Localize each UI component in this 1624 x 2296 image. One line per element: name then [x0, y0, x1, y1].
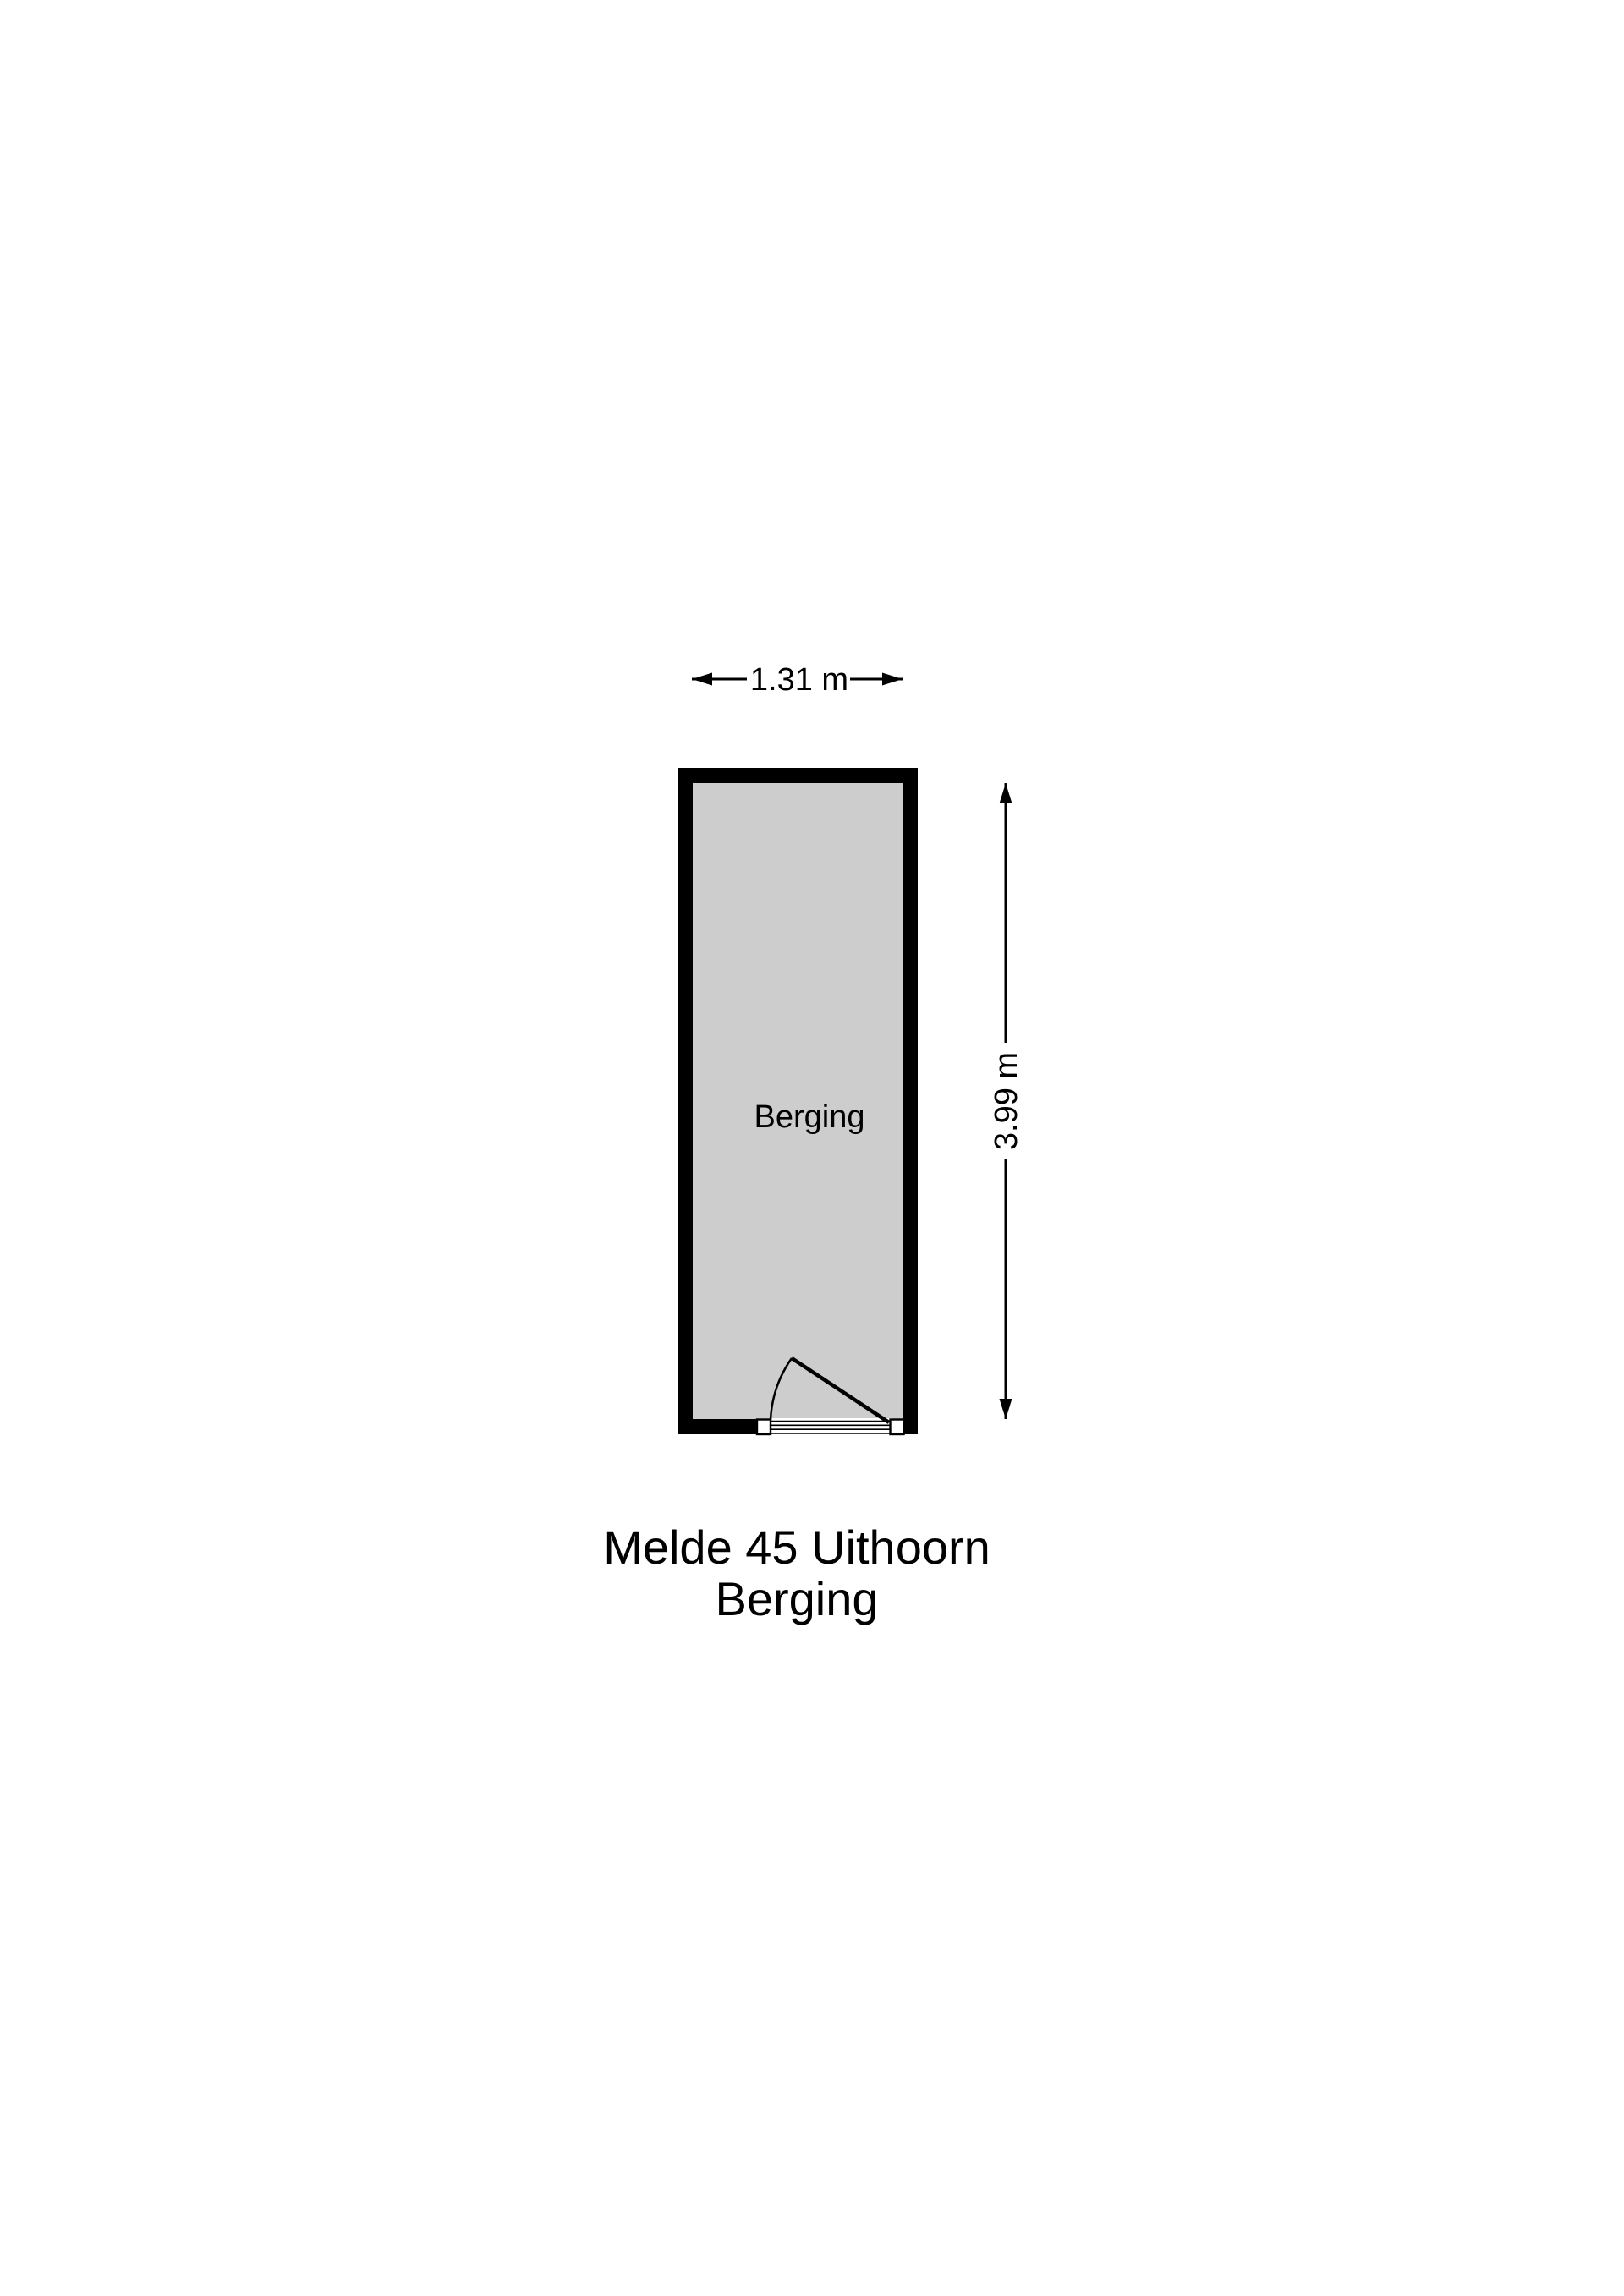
arrowhead-left-icon: [692, 673, 712, 686]
caption-line2: Berging: [715, 1572, 878, 1625]
arrowhead-up-icon: [1000, 783, 1012, 803]
floorplan-canvas: 1.31 m Berging 3.99 m: [0, 0, 1624, 2296]
width-dimension: 1.31 m: [692, 662, 903, 698]
room-label: Berging: [754, 1099, 865, 1135]
height-dimension: 3.99 m: [989, 783, 1024, 1419]
arrowhead-right-icon: [882, 673, 903, 686]
floorplan-page: 1.31 m Berging 3.99 m: [0, 0, 1624, 2296]
width-dimension-label: 1.31 m: [750, 662, 848, 698]
height-dimension-label: 3.99 m: [989, 1052, 1024, 1150]
caption-line1: Melde 45 Uithoorn: [603, 1521, 990, 1574]
caption: Melde 45 Uithoorn Berging: [603, 1521, 990, 1625]
arrowhead-down-icon: [1000, 1399, 1012, 1419]
door-jamb-left: [757, 1420, 771, 1435]
door-jamb-right: [891, 1420, 904, 1435]
